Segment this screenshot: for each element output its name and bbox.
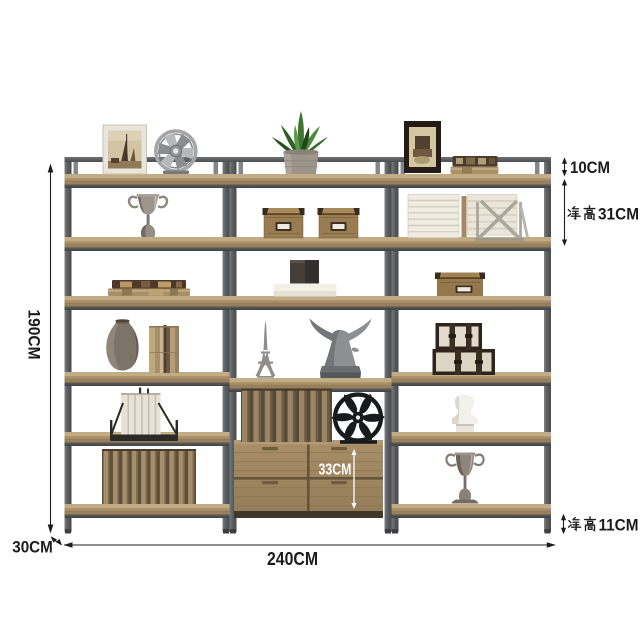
svg-text:240CM: 240CM — [267, 549, 318, 569]
svg-text:30CM: 30CM — [12, 538, 53, 557]
svg-text:190CM: 190CM — [25, 310, 44, 360]
svg-text:31CM: 31CM — [598, 205, 639, 224]
svg-text:10CM: 10CM — [570, 158, 610, 177]
svg-text:33CM: 33CM — [319, 462, 352, 479]
svg-text:11CM: 11CM — [599, 516, 639, 535]
